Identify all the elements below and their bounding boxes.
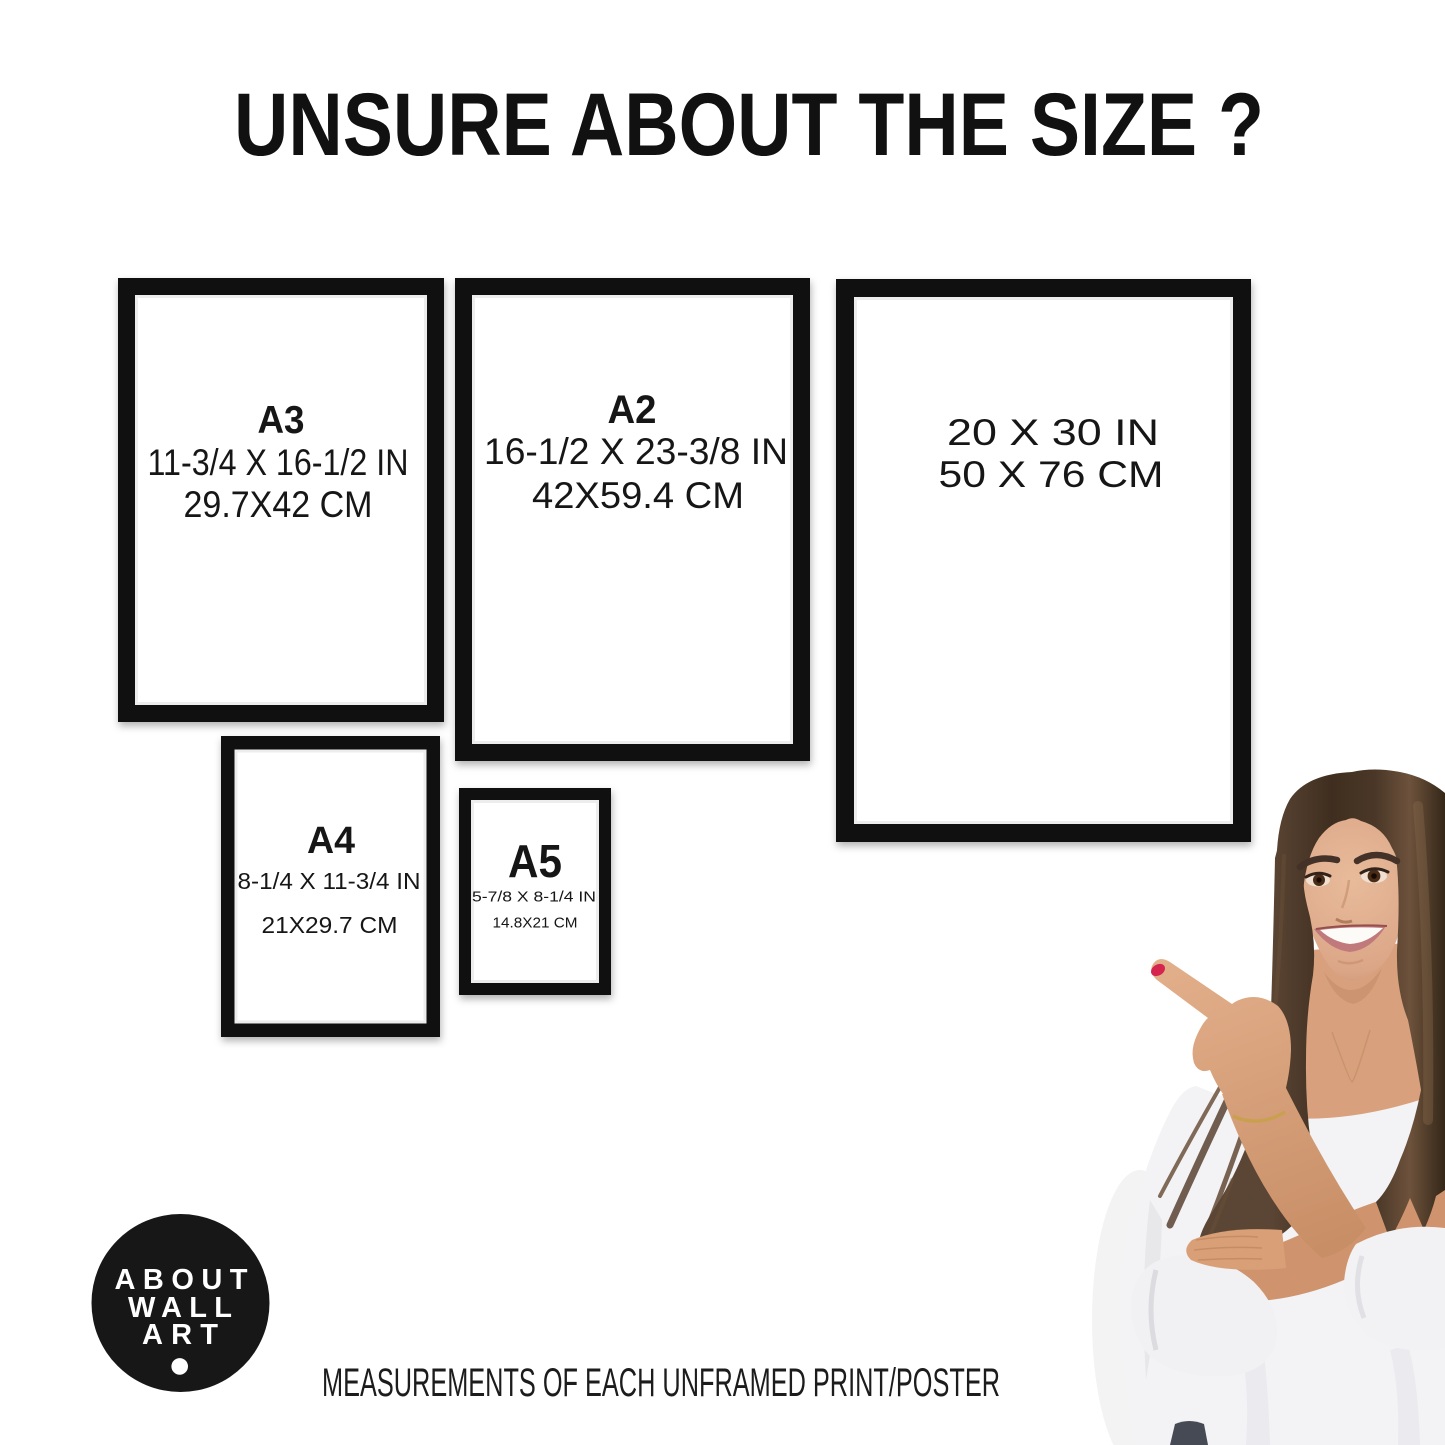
svg-text:MEASUREMENTS OF EACH UNFRAMED: MEASUREMENTS OF EACH UNFRAMED PRINT/POST…	[322, 1361, 1000, 1405]
svg-text:A3: A3	[258, 399, 305, 442]
svg-text:A4: A4	[307, 820, 355, 862]
svg-text:29.7X42 CM: 29.7X42 CM	[184, 484, 373, 525]
svg-text:21X29.7 CM: 21X29.7 CM	[262, 912, 398, 938]
svg-text:50 X 76 CM: 50 X 76 CM	[939, 454, 1164, 495]
svg-text:A2: A2	[608, 388, 657, 432]
svg-text:A5: A5	[508, 835, 562, 887]
svg-text:14.8X21 CM: 14.8X21 CM	[493, 915, 578, 932]
svg-text:16-1/2 X 23-3/8 IN: 16-1/2 X 23-3/8 IN	[484, 431, 788, 472]
svg-text:UNSURE ABOUT THE SIZE ?: UNSURE ABOUT THE SIZE ?	[234, 74, 1264, 174]
svg-text:42X59.4 CM: 42X59.4 CM	[532, 475, 744, 516]
svg-text:5-7/8 X 8-1/4 IN: 5-7/8 X 8-1/4 IN	[472, 889, 596, 906]
svg-text:20 X 30 IN: 20 X 30 IN	[947, 412, 1159, 453]
svg-text:11-3/4 X 16-1/2 IN: 11-3/4 X 16-1/2 IN	[148, 442, 409, 483]
svg-text:ART: ART	[142, 1319, 218, 1351]
svg-text:8-1/4 X 11-3/4 IN: 8-1/4 X 11-3/4 IN	[238, 868, 421, 894]
